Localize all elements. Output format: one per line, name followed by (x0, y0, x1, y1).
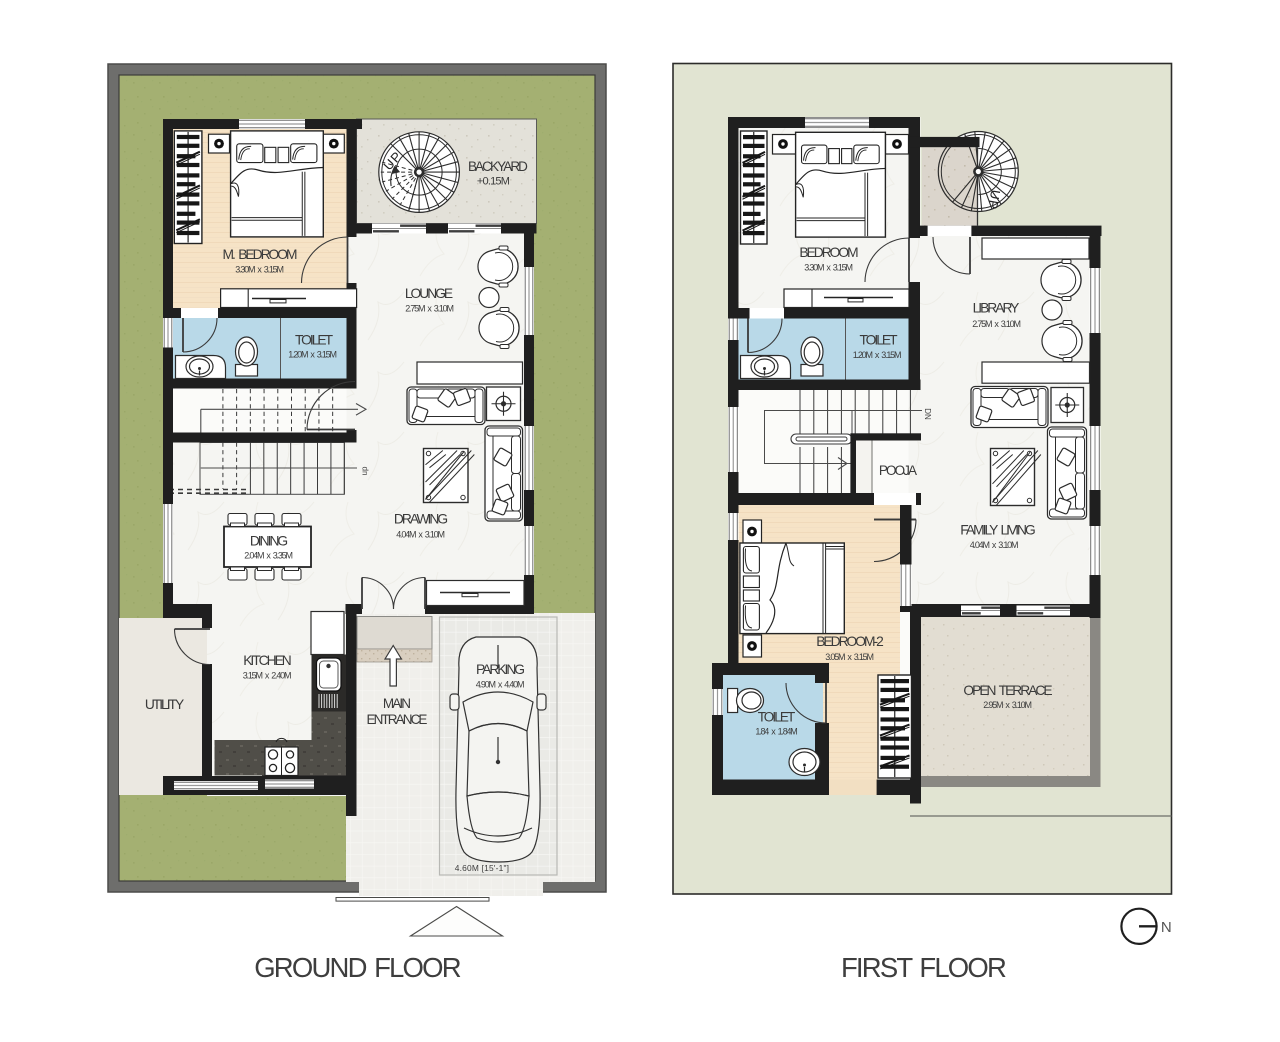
svg-text:4.60M [15'-1"]: 4.60M [15'-1"] (455, 863, 509, 873)
svg-text:2.75M x 3.10M: 2.75M x 3.10M (972, 319, 1020, 329)
svg-text:FAMILY LIVING: FAMILY LIVING (960, 523, 1035, 538)
svg-text:4.04M x 3.10M: 4.04M x 3.10M (970, 540, 1018, 550)
svg-text:MAIN: MAIN (383, 696, 410, 711)
svg-text:TOILET: TOILET (859, 333, 898, 348)
svg-text:UTILITY: UTILITY (145, 697, 184, 712)
svg-text:3.30M x 3.15M: 3.30M x 3.15M (804, 263, 852, 273)
svg-text:OPEN TERRACE: OPEN TERRACE (963, 683, 1052, 698)
svg-text:TOILET: TOILET (295, 333, 334, 348)
svg-text:4.90M x 4.40M: 4.90M x 4.40M (476, 680, 524, 690)
svg-text:1.20M x 3.15M: 1.20M x 3.15M (853, 350, 901, 360)
svg-text:BACKYARD: BACKYARD (468, 159, 528, 174)
svg-text:DINING: DINING (250, 534, 288, 549)
svg-text:LIBRARY: LIBRARY (973, 301, 1020, 316)
svg-text:LOUNGE: LOUNGE (405, 286, 453, 301)
svg-text:ENTRANCE: ENTRANCE (366, 712, 427, 727)
svg-text:1.84 x 1.84M: 1.84 x 1.84M (755, 727, 797, 737)
svg-text:M. BEDROOM: M. BEDROOM (222, 247, 297, 262)
svg-text:POOJA: POOJA (879, 463, 917, 478)
svg-text:4.04M x 3.10M: 4.04M x 3.10M (396, 530, 444, 540)
svg-text:up: up (360, 466, 369, 475)
svg-text:3.05M x 3.15M: 3.05M x 3.15M (825, 652, 873, 662)
svg-text:2.95M x 3.10M: 2.95M x 3.10M (983, 700, 1031, 710)
svg-text:BEDROOM: BEDROOM (799, 245, 858, 260)
svg-text:DRAWING: DRAWING (394, 512, 447, 527)
svg-text:GROUND FLOOR: GROUND FLOOR (254, 952, 461, 983)
svg-text:N: N (1161, 919, 1172, 936)
svg-text:2.04M x 3.35M: 2.04M x 3.35M (244, 551, 292, 561)
svg-text:BEDROOM-2: BEDROOM-2 (816, 634, 883, 649)
svg-text:TOILET: TOILET (758, 710, 795, 725)
svg-text:3.30M x 3.15M: 3.30M x 3.15M (235, 265, 283, 275)
svg-text:FIRST FLOOR: FIRST FLOOR (841, 952, 1006, 983)
svg-text:KITCHEN: KITCHEN (243, 653, 291, 668)
svg-text:3.15M x 2.40M: 3.15M x 2.40M (243, 671, 291, 681)
svg-text:DN: DN (923, 408, 932, 420)
svg-text:+0.15M: +0.15M (477, 176, 510, 188)
svg-text:PARKING: PARKING (476, 662, 524, 677)
svg-text:1.20M x 3.15M: 1.20M x 3.15M (288, 350, 336, 360)
svg-text:2.75M x 3.10M: 2.75M x 3.10M (405, 304, 453, 314)
